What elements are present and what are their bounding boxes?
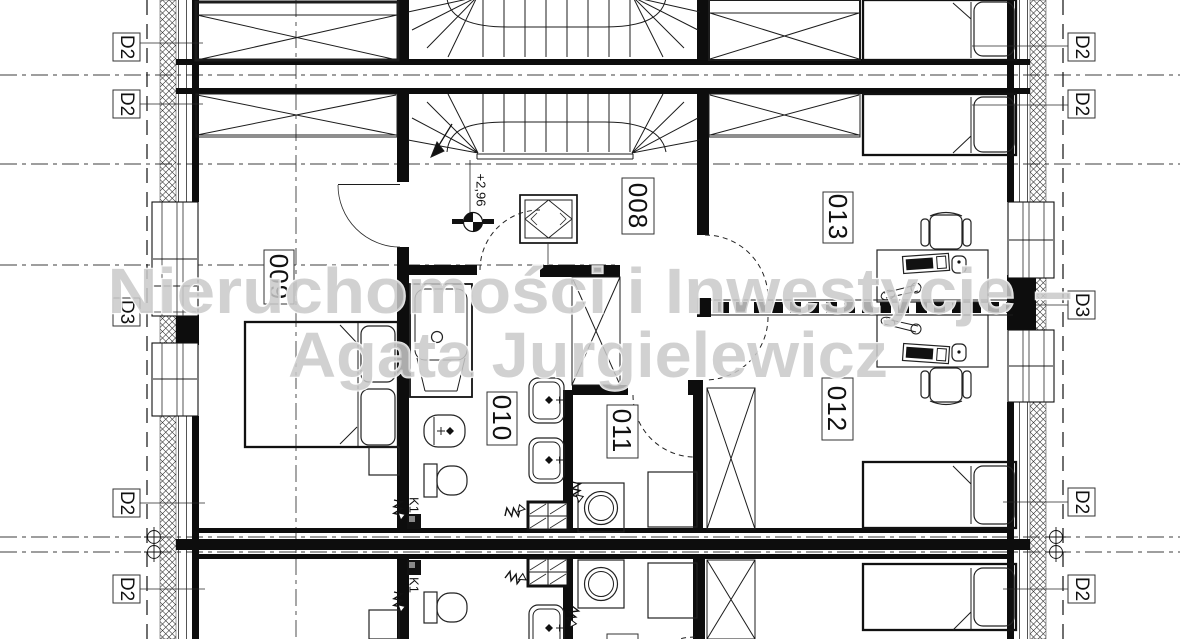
stair-direction-arrow <box>431 124 452 157</box>
room-label-box-lower <box>607 634 638 639</box>
riser-symbol <box>503 504 526 519</box>
washbasin-2 <box>529 438 564 483</box>
bed-lower <box>863 564 1016 630</box>
staircase-upper-unit <box>408 0 700 57</box>
washbasin-lower <box>529 605 564 639</box>
room-label-012: 012 <box>822 386 852 432</box>
marker-d2-right-4: D2 <box>1071 577 1092 601</box>
watermark-line-1: Nieruchomości i Inwestycje – <box>108 255 1073 327</box>
flue-k1 <box>407 514 421 529</box>
marker-d2-left-1: D2 <box>116 35 137 59</box>
toilet <box>424 464 467 497</box>
shower-cabinet <box>648 472 697 527</box>
chair-013 <box>921 213 971 250</box>
upper-unit-partial <box>196 0 1016 60</box>
nightstand-lower <box>369 610 399 639</box>
lower-unit-partial <box>369 558 1016 639</box>
bed-013 <box>863 94 1016 155</box>
riser-symbol <box>504 570 527 585</box>
washing-machine-lower <box>578 560 624 608</box>
door-to-011-arc <box>633 395 695 457</box>
room-label-008: 008 <box>623 183 653 229</box>
party-wall-top <box>176 59 1030 94</box>
marker-d2-right-1: D2 <box>1071 35 1092 59</box>
staircase-middle-unit <box>408 94 700 159</box>
room-label-010: 010 <box>487 395 517 441</box>
bed-upper-unit <box>863 0 1016 60</box>
floor-plan-image: 008 009 010 011 012 013 D2 D2 D3 D2 D2 D… <box>0 0 1180 639</box>
marker-d2-left-2: D2 <box>116 92 137 116</box>
flue-label-k1: K1 <box>407 497 422 513</box>
party-wall-bottom <box>176 528 1030 559</box>
toilet-lower <box>424 592 467 623</box>
bed-012 <box>863 462 1016 528</box>
watermark: Nieruchomości i Inwestycje – Agata Jurgi… <box>108 255 1073 391</box>
chair-012 <box>921 368 971 405</box>
wardrobe-lower <box>707 560 755 639</box>
flue-label-k1-lower: K1 <box>407 577 422 593</box>
marker-d3-right: D3 <box>1071 293 1092 317</box>
vent-block-lower <box>528 558 568 586</box>
washing-machine <box>578 483 624 532</box>
marker-d2-right-2: D2 <box>1071 92 1092 116</box>
floor-plan-svg: 008 009 010 011 012 013 D2 D2 D3 D2 D2 D… <box>0 0 1180 639</box>
watermark-line-2: Agata Jurgielewicz <box>288 319 888 391</box>
marker-d2-right-3: D2 <box>1071 490 1092 514</box>
window-right-lower <box>1008 330 1054 402</box>
room-label-011: 011 <box>607 409 637 453</box>
level-text: +2,96 <box>474 174 489 207</box>
marker-d2-left-4: D2 <box>116 577 137 601</box>
bidet <box>424 415 465 447</box>
room-label-013: 013 <box>823 194 853 240</box>
shower-cabinet-lower <box>648 563 697 618</box>
window-left-lower <box>152 343 198 416</box>
vent-block <box>528 502 568 530</box>
flue-k1-lower <box>407 560 421 575</box>
marker-d2-left-3: D2 <box>116 491 137 515</box>
wardrobe-012 <box>707 388 755 529</box>
door-to-009 <box>338 185 400 248</box>
nightstand <box>369 447 399 475</box>
